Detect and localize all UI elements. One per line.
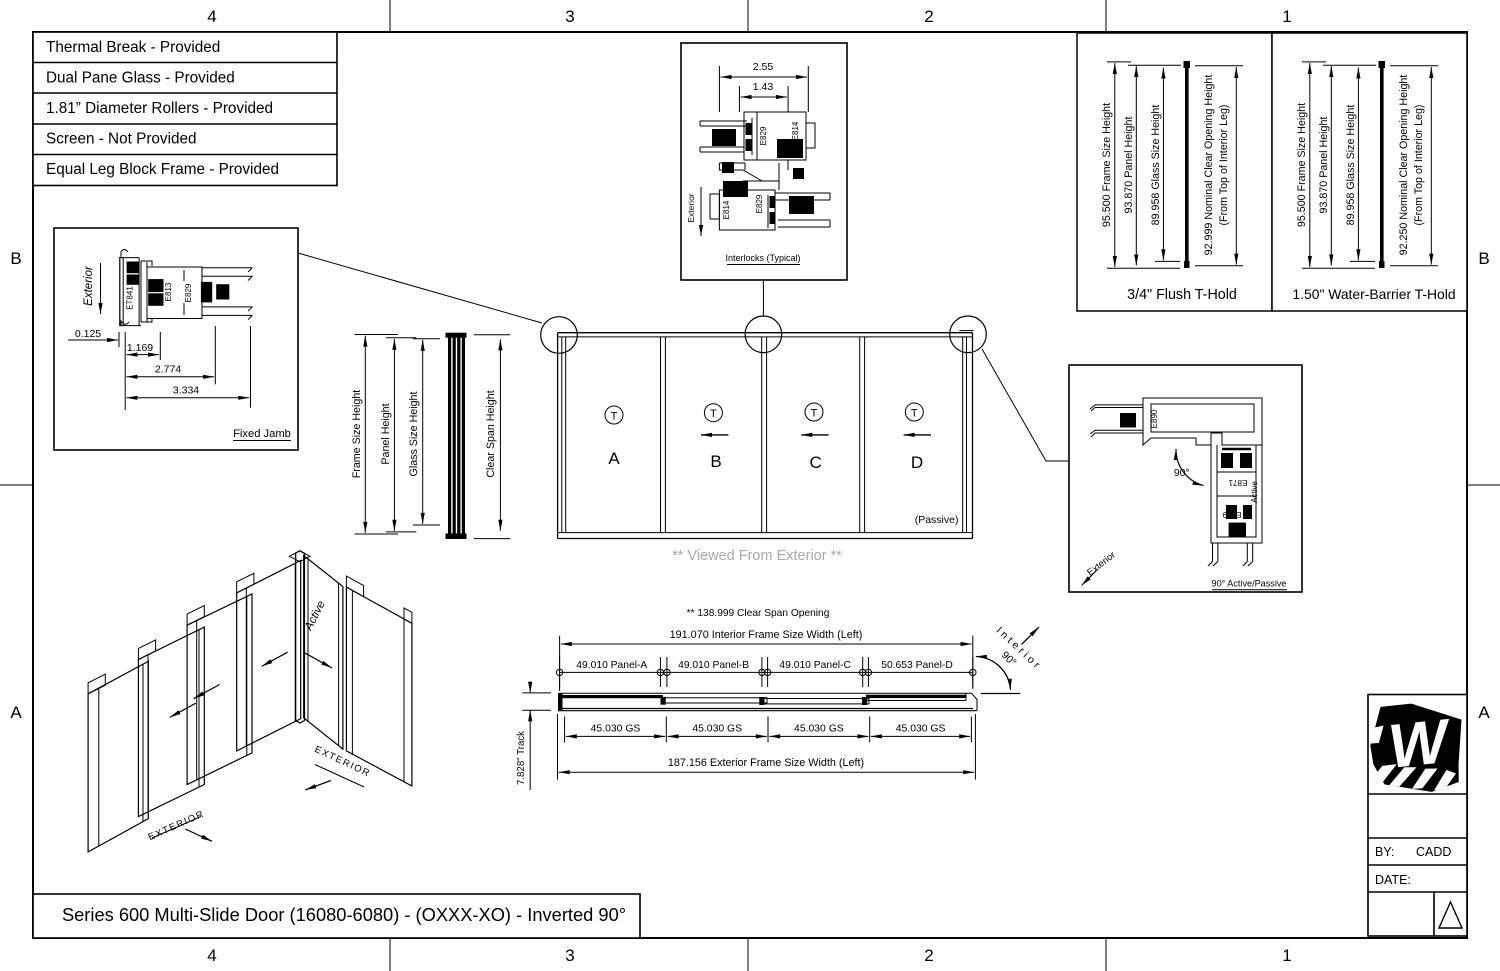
svg-text:191.070 Interior Frame Size Wi: 191.070 Interior Frame Size Width (Left) xyxy=(670,629,863,641)
svg-text:Series 600 Multi-Slide Door (1: Series 600 Multi-Slide Door (16080-6080)… xyxy=(62,904,626,925)
svg-text:Exterior: Exterior xyxy=(686,193,696,222)
svg-text:Clear Span Height: Clear Span Height xyxy=(485,390,497,477)
svg-text:A: A xyxy=(608,449,620,468)
svg-text:92.999 Nominal Clear Opening H: 92.999 Nominal Clear Opening Height xyxy=(1203,75,1215,256)
svg-text:EXTERIOR: EXTERIOR xyxy=(147,808,207,843)
svg-text:90° Active/Passive: 90° Active/Passive xyxy=(1212,579,1287,589)
svg-text:93.870 Panel Height: 93.870 Panel Height xyxy=(1123,117,1135,214)
svg-text:E890: E890 xyxy=(1150,409,1159,428)
svg-text:7.828" Track: 7.828" Track xyxy=(516,731,527,785)
svg-text:A: A xyxy=(10,703,22,722)
svg-text:3/4" Flush T-Hold: 3/4" Flush T-Hold xyxy=(1127,287,1237,303)
svg-text:93.870 Panel Height: 93.870 Panel Height xyxy=(1318,117,1330,214)
svg-text:BY:: BY: xyxy=(1375,845,1394,859)
svg-text:B: B xyxy=(10,249,21,268)
svg-text:T: T xyxy=(811,408,818,420)
svg-text:E829: E829 xyxy=(755,194,764,213)
svg-text:E814: E814 xyxy=(791,121,800,140)
svg-text:4: 4 xyxy=(207,946,216,965)
svg-text:E813: E813 xyxy=(164,282,173,301)
svg-text:Active: Active xyxy=(1250,481,1259,503)
svg-text:A: A xyxy=(1478,703,1490,722)
svg-text:1.50" Water-Barrier T-Hold: 1.50" Water-Barrier T-Hold xyxy=(1292,286,1455,302)
svg-text:E814: E814 xyxy=(722,200,731,219)
svg-text:(From Top of Interior Leg): (From Top of Interior Leg) xyxy=(1413,105,1425,226)
svg-text:0.125: 0.125 xyxy=(75,328,101,340)
svg-text:187.156 Exterior Frame Size Wi: 187.156 Exterior Frame Size Width (Left) xyxy=(668,757,864,769)
svg-text:4: 4 xyxy=(207,7,216,26)
svg-text:(Passive): (Passive) xyxy=(915,514,959,526)
svg-text:** 138.999 Clear Span Opening: ** 138.999 Clear Span Opening xyxy=(687,608,830,619)
svg-text:Dual Pane Glass - Provided: Dual Pane Glass - Provided xyxy=(46,70,235,87)
svg-text:E829: E829 xyxy=(184,283,193,302)
svg-text:3: 3 xyxy=(565,7,574,26)
svg-text:90°: 90° xyxy=(1174,467,1190,479)
svg-text:89.958 Glass Size Height: 89.958 Glass Size Height xyxy=(1345,105,1357,226)
svg-text:2.774: 2.774 xyxy=(155,364,181,376)
svg-text:(From Top of Interior Leg): (From Top of Interior Leg) xyxy=(1218,105,1230,226)
svg-text:Frame Size Height: Frame Size Height xyxy=(351,390,363,479)
svg-text:E829: E829 xyxy=(1222,510,1241,519)
svg-text:1.43: 1.43 xyxy=(753,81,774,93)
svg-text:T: T xyxy=(911,408,918,420)
svg-text:Screen - Not Provided: Screen - Not Provided xyxy=(46,131,197,148)
svg-text:45.030 GS: 45.030 GS xyxy=(896,724,946,735)
svg-text:Glass Size Height: Glass Size Height xyxy=(408,392,420,477)
svg-text:DATE:: DATE: xyxy=(1375,873,1411,887)
svg-text:** Viewed From Exterior **: ** Viewed From Exterior ** xyxy=(672,548,842,564)
svg-text:B: B xyxy=(1478,249,1489,268)
svg-text:Interior: Interior xyxy=(994,625,1045,674)
svg-text:Exterior: Exterior xyxy=(83,265,95,306)
svg-text:Fixed Jamb: Fixed Jamb xyxy=(233,428,291,440)
svg-text:T: T xyxy=(611,411,618,423)
svg-text:45.030 GS: 45.030 GS xyxy=(794,724,844,735)
svg-text:45.030 GS: 45.030 GS xyxy=(692,724,742,735)
svg-text:Equal Leg Block Frame - Provid: Equal Leg Block Frame - Provided xyxy=(46,161,279,178)
svg-text:1.169: 1.169 xyxy=(127,342,153,354)
svg-text:CADD: CADD xyxy=(1416,845,1451,859)
svg-text:Thermal Break - Provided: Thermal Break - Provided xyxy=(46,39,220,56)
svg-text:E829: E829 xyxy=(759,126,768,145)
svg-text:T: T xyxy=(710,408,717,420)
svg-text:1: 1 xyxy=(1282,946,1291,965)
svg-text:2: 2 xyxy=(924,7,933,26)
svg-text:92.250 Nominal Clear Opening H: 92.250 Nominal Clear Opening Height xyxy=(1398,75,1410,256)
svg-text:49.010 Panel-C: 49.010 Panel-C xyxy=(779,660,851,671)
svg-text:Active: Active xyxy=(302,599,327,633)
svg-text:2.55: 2.55 xyxy=(753,61,774,73)
svg-text:Interlocks (Typical): Interlocks (Typical) xyxy=(725,253,800,263)
svg-text:E871: E871 xyxy=(1228,478,1247,487)
svg-text:49.010 Panel-A: 49.010 Panel-A xyxy=(576,660,647,671)
svg-text:C: C xyxy=(809,453,821,472)
svg-text:ET841: ET841 xyxy=(126,286,135,310)
svg-text:D: D xyxy=(911,453,923,472)
svg-text:45.030 GS: 45.030 GS xyxy=(591,724,641,735)
svg-text:95.500 Frame Size Height: 95.500 Frame Size Height xyxy=(1296,103,1308,227)
svg-text:49.010 Panel-B: 49.010 Panel-B xyxy=(678,660,749,671)
svg-text:1.81” Diameter Rollers - Provi: 1.81” Diameter Rollers - Provided xyxy=(46,100,273,117)
svg-text:Panel Height: Panel Height xyxy=(380,403,392,464)
svg-text:95.500 Frame Size Height: 95.500 Frame Size Height xyxy=(1101,103,1113,227)
svg-text:B: B xyxy=(710,452,721,471)
svg-text:89.958 Glass Size Height: 89.958 Glass Size Height xyxy=(1150,105,1162,226)
svg-text:50.653 Panel-D: 50.653 Panel-D xyxy=(881,660,953,671)
svg-text:1: 1 xyxy=(1282,7,1291,26)
svg-text:3: 3 xyxy=(565,946,574,965)
svg-text:3.334: 3.334 xyxy=(173,385,199,397)
svg-text:2: 2 xyxy=(924,946,933,965)
